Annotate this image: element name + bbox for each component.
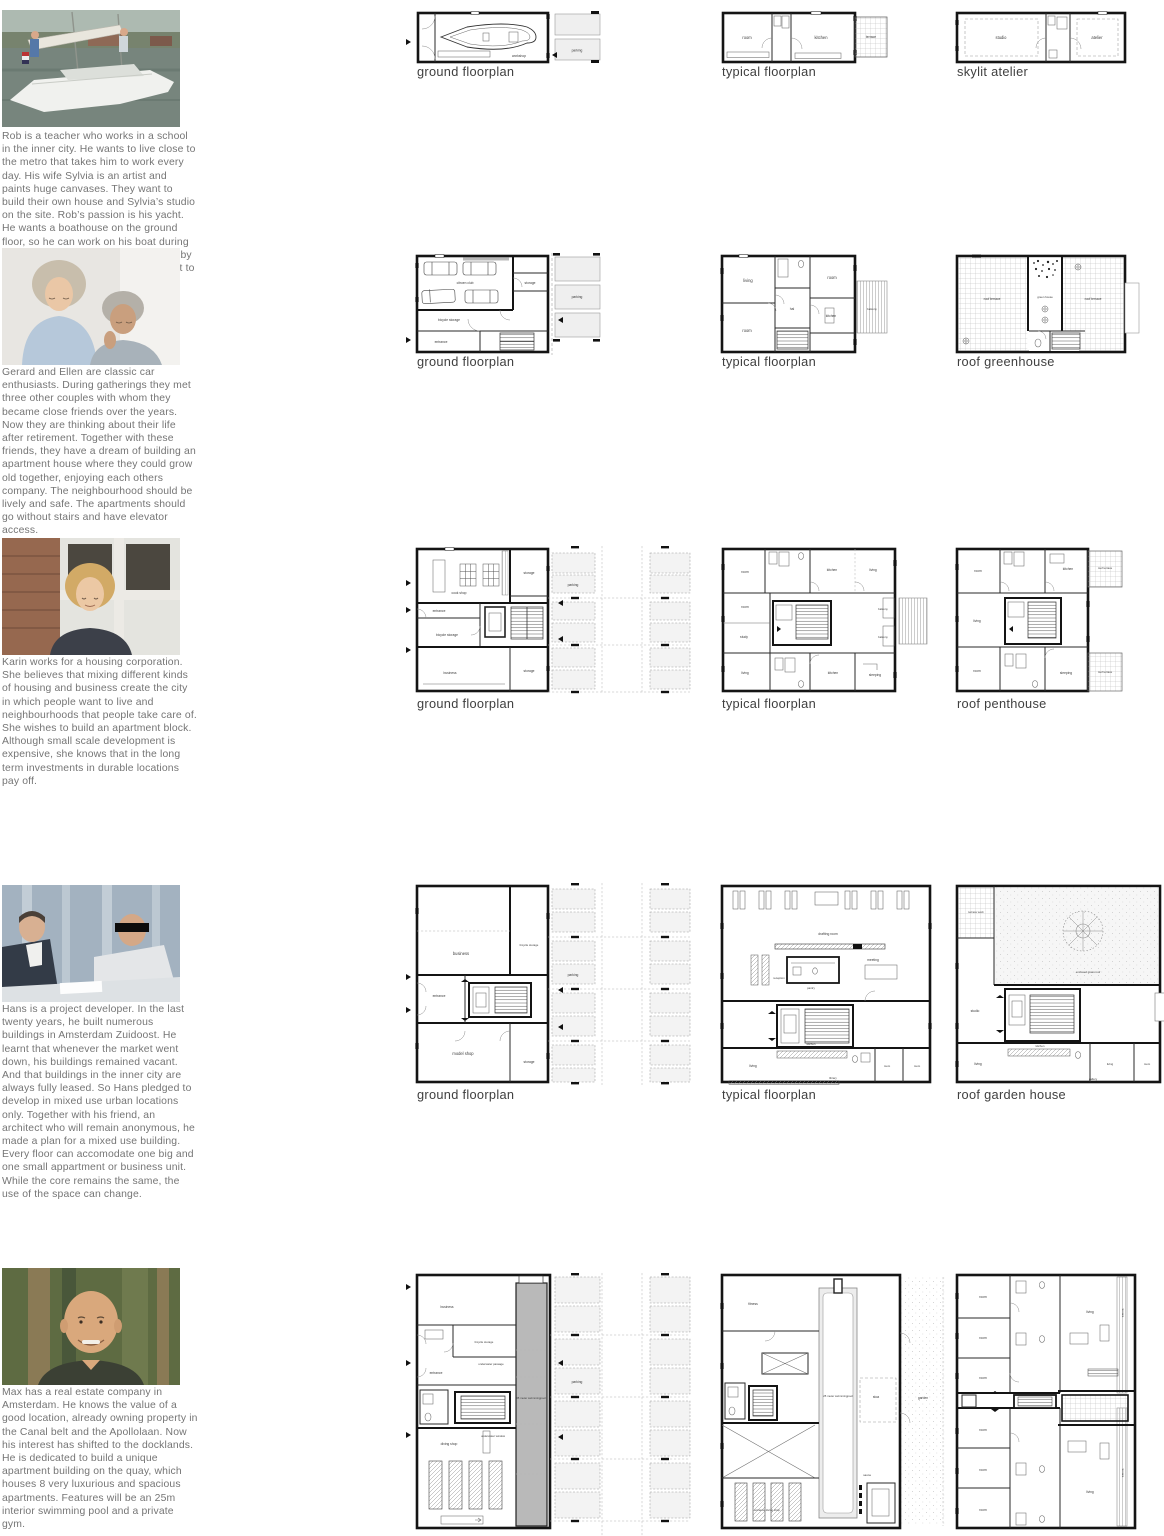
plan-hans-ground-floorplan: business bicycle storage entrance model … (405, 883, 690, 1085)
couple-photo-illustration (2, 248, 180, 365)
room-label: roof terrace (1098, 670, 1113, 674)
room-label: room (979, 1336, 987, 1340)
room-label: drafting room (818, 932, 838, 936)
room-label: room (914, 1064, 921, 1068)
room-label: diving shop (441, 1442, 458, 1446)
core (768, 1005, 853, 1047)
room-label: living (1086, 1310, 1094, 1314)
swimming-pool (819, 1279, 857, 1518)
room-label: sauna (863, 1473, 871, 1477)
plan-gerard-typical-floorplan: living room hal kitchen balcony room (715, 253, 940, 355)
room-label: study (740, 635, 748, 639)
room-label: sleeping (1060, 671, 1072, 675)
room-label: sleeping (869, 673, 881, 677)
persona-description-gerard-ellen: Gerard and Ellen are classic car enthusi… (2, 366, 198, 538)
sailboat-photo-illustration (2, 10, 180, 127)
persona-description-karin: Karin works for a housing corporation. S… (2, 656, 198, 788)
room-label: underwater passage (478, 1362, 504, 1366)
swimming-pool (516, 1283, 547, 1526)
plan-caption: roof greenhouse (957, 354, 1055, 369)
karin-photo-illustration (2, 538, 180, 655)
room-label: terrace work (968, 910, 984, 914)
parking-spaces (552, 553, 690, 689)
room-label: storage (524, 669, 535, 673)
persona-description-hans: Hans is a project developer. In the last… (2, 1003, 198, 1201)
plan-caption: ground floorplan (417, 354, 514, 369)
room-label: parking (568, 583, 579, 587)
core (461, 979, 531, 1021)
room-label: balcony (878, 635, 888, 639)
room-label: room (742, 328, 752, 333)
main-stair (1058, 1391, 1135, 1425)
parking-spaces (552, 889, 690, 1082)
room-label: room (827, 275, 837, 280)
photo-karin-portrait (2, 538, 180, 655)
stair-icon (511, 607, 543, 639)
room-label: cook shop (451, 591, 466, 595)
room-label: stoa (873, 1395, 879, 1399)
room-label: roof terrace (984, 297, 1001, 301)
room-label: living (869, 568, 877, 572)
room-label: room (979, 1428, 987, 1432)
plan-max-ground-floorplan: 35 meter swimmingpool business bicycle s… (405, 1273, 690, 1536)
room-label: kitchen (807, 1042, 816, 1046)
room-label: green house (1037, 295, 1053, 299)
room-label: entrance (433, 609, 446, 613)
plan-caption: typical floorplan (722, 64, 816, 79)
plan-gerard-ground-floorplan: citroen club storage bicycle storage ent… (405, 253, 605, 355)
room-label: model shop (452, 1051, 474, 1056)
terrace-strip (1117, 1277, 1127, 1393)
room-label: terrace (1121, 1469, 1125, 1478)
room-label: library (829, 1076, 837, 1080)
room-label: terrace (1121, 1309, 1125, 1318)
plan-karin-ground-floorplan: cook shop storage entrance bicycle stora… (405, 546, 690, 694)
room-label: atelier (1091, 35, 1103, 40)
room-label: parking (572, 49, 583, 53)
photo-rob-sailboat (2, 10, 180, 127)
plan-caption: roof garden house (957, 1087, 1066, 1102)
room-label: living (973, 619, 981, 623)
balcony-deck (899, 598, 927, 644)
room-label: kitchen (1063, 567, 1074, 571)
room-label: meeting (867, 958, 879, 962)
plan-caption: ground floorplan (417, 696, 514, 711)
room-label: enclosed grass roof (1076, 970, 1101, 974)
room-label: bicycle storage (475, 1340, 494, 1344)
pantry-core (787, 957, 839, 983)
elevator-icon (485, 607, 505, 637)
room-label: kitchen (815, 35, 829, 40)
room-label: kitchen (828, 671, 839, 675)
room-label: garden (918, 1396, 928, 1400)
room-label: 25 meter swimmingpool (823, 1394, 853, 1398)
plan-caption: roof penthouse (957, 696, 1047, 711)
room-label: balcony (867, 307, 877, 311)
room-label: citroen club (457, 281, 474, 285)
room-label: hal (790, 307, 795, 311)
room-label: living (741, 671, 749, 675)
plan-caption: ground floorplan (417, 64, 514, 79)
core (996, 989, 1080, 1041)
room-label: pantry (807, 986, 815, 990)
plan-rob-skylit-atelier: studio atelier (950, 8, 1150, 66)
room-label: room (979, 1468, 987, 1472)
plan-max-apartment-floorplan: room room room living terrace (950, 1273, 1164, 1536)
hans-photo-illustration (2, 885, 180, 1002)
stair-icon (500, 333, 534, 350)
room-label: storage (524, 1060, 535, 1064)
plan-caption: typical floorplan (722, 354, 816, 369)
room-label: bicycle storage (436, 633, 458, 637)
plan-karin-typical-floorplan: room kitchen living room study balcony b… (715, 546, 945, 694)
photo-max-portrait (2, 1268, 180, 1385)
room-label: kitchen (827, 568, 838, 572)
room-label: room (741, 570, 749, 574)
room-label: living (1086, 1490, 1094, 1494)
room-label: entrance diving shop (754, 1508, 780, 1512)
room-label: room (973, 669, 981, 673)
max-photo-illustration (2, 1268, 180, 1385)
plan-hans-typical-floorplan: drafting room reception pantry meeting (715, 883, 945, 1085)
room-label: reception (773, 976, 785, 980)
room-label: living (974, 1062, 982, 1066)
plan-rob-ground-floorplan: workshop parking (405, 8, 605, 66)
room-label: underwater window (481, 1434, 506, 1438)
room-label: room (979, 1376, 987, 1380)
room-label: fitness (748, 1302, 758, 1306)
plan-gerard-roof-greenhouse: roof terrace green house roof terrace (950, 253, 1150, 355)
photo-hans-meeting (2, 885, 180, 1002)
room-label: room (884, 1064, 891, 1068)
page: Rob is a teacher who works in a school i… (0, 0, 1164, 1536)
core (773, 601, 831, 645)
garden-area (901, 1277, 945, 1526)
room-label: entrance (433, 994, 446, 998)
stair-icon (777, 331, 808, 349)
plan-karin-roof-penthouse: roof terrace roof terrace room kitchen l… (950, 546, 1164, 694)
room-label: room (979, 1508, 987, 1512)
room-label: entrance (435, 340, 448, 344)
room-label: bicycle storage (520, 943, 539, 947)
room-label: parking (572, 1380, 583, 1384)
room-label: room (974, 569, 982, 573)
tree-icon (1063, 911, 1103, 951)
room-label: storage (525, 281, 536, 285)
room-label: studio (971, 1009, 980, 1013)
photo-gerard-ellen-couple (2, 248, 180, 365)
room-label: roof terrace (1085, 297, 1102, 301)
plan-max-pool-floorplan: garden 25 meter swimmingpool fitness sto… (715, 1273, 960, 1536)
room-label: balcony (878, 607, 888, 611)
persona-description-max: Max has a real estate company in Amsterd… (2, 1386, 198, 1531)
room-label: workshop (512, 54, 526, 58)
plan-caption: ground floorplan (417, 1087, 514, 1102)
room-label: room (741, 605, 749, 609)
room-label: business (440, 1305, 453, 1309)
room-label: bicycle storage (438, 318, 460, 322)
plan-caption: typical floorplan (722, 696, 816, 711)
room-label: room (979, 1295, 987, 1299)
plan-caption: typical floorplan (722, 1087, 816, 1102)
stair-icon (1052, 333, 1080, 349)
plan-caption: skylit atelier (957, 64, 1028, 79)
room-label: kitchen (1036, 1044, 1045, 1048)
room-label: roof terrace (1098, 566, 1113, 570)
room-label: parking (568, 973, 579, 977)
room-label: living (1107, 1062, 1114, 1066)
plan-rob-typical-floorplan: room kitchen terrace (715, 8, 900, 66)
room-label: kitchen (826, 314, 837, 318)
room-label: storage (524, 571, 535, 575)
room-label: room (1144, 1062, 1151, 1066)
room-label: room (742, 35, 752, 40)
core (1005, 598, 1061, 644)
room-label: studio (996, 35, 1008, 40)
room-label: terrace (866, 35, 876, 39)
room-label: living (743, 278, 753, 283)
plan-hans-roof-garden-house: terrace work enclosed grass roof studio … (950, 883, 1164, 1085)
room-label: business (453, 951, 469, 956)
room-label: parking (572, 295, 583, 299)
room-label: business (443, 671, 456, 675)
room-label: 35 meter swimmingpool (516, 1396, 546, 1400)
room-label: living (749, 1064, 757, 1068)
room-label: gallery (1089, 1077, 1098, 1081)
room-label: entrance (430, 1371, 443, 1375)
